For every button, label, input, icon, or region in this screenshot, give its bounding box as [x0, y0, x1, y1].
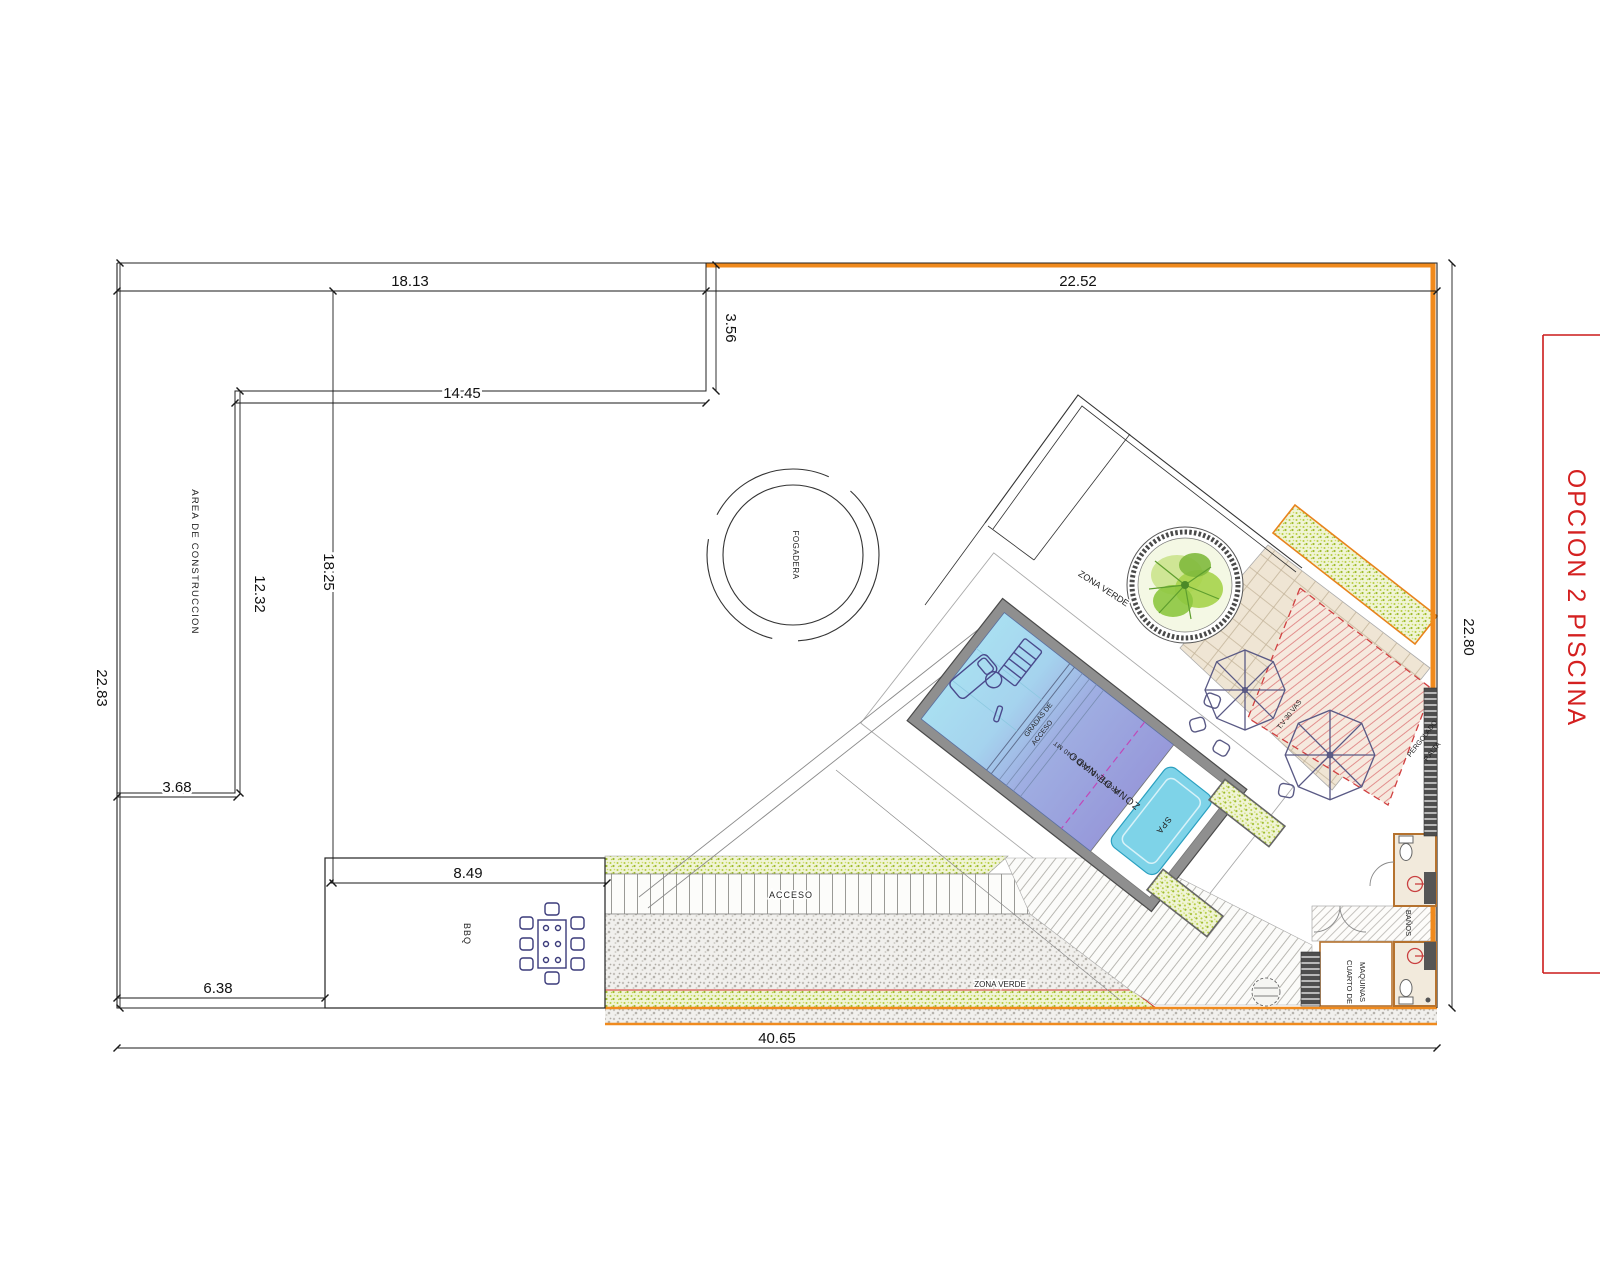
shower-stall-bottom	[1424, 942, 1436, 970]
dim-inner-width: 14.45	[443, 385, 481, 402]
dim-left-step-width: 3.68	[162, 779, 191, 796]
round-equipment	[1252, 978, 1280, 1006]
green-zone-lower-label: ZONA VERDE	[974, 980, 1026, 989]
machine-room-label-2: MAQUINAS	[1358, 962, 1367, 1002]
boundary-bottom-band	[605, 1008, 1437, 1024]
shower-stall-top	[1424, 872, 1436, 904]
dim-top-width: 18.13	[391, 273, 429, 290]
toilet-icon	[1400, 980, 1412, 997]
tree	[1127, 527, 1243, 643]
fire-pit: FOGADERA	[707, 469, 879, 641]
dim-left-height: 22.83	[93, 669, 110, 707]
dim-mid-height: 18.25	[320, 553, 337, 591]
pump-equipment	[1301, 952, 1320, 1006]
walkway-grass-strip-top	[605, 856, 1008, 874]
dim-total-width: 40.65	[758, 1030, 796, 1047]
plan-title: OPCION 2 PISCINA	[1562, 469, 1590, 727]
fire-pit-label: FOGADERA	[791, 531, 800, 580]
umbrella-1	[1205, 650, 1285, 730]
dim-bbq-width: 8.49	[453, 865, 482, 882]
umbrella-2	[1285, 710, 1375, 800]
bbq-label: BBQ	[462, 923, 472, 945]
walkway-grass-strip-bottom	[605, 990, 1156, 1008]
toilet-icon	[1400, 844, 1412, 861]
dim-bottom-left-width: 6.38	[203, 980, 232, 997]
pool-plan-drawing: FOGADERA BBQ CUARTO DE MAQUINAS BAÑOS	[0, 0, 1600, 1280]
floor-drain	[1426, 998, 1431, 1003]
machine-room-label-1: CUARTO DE	[1345, 960, 1354, 1004]
dim-right-height: 22.80	[1460, 618, 1477, 656]
walkway-deck-boards	[605, 874, 1082, 914]
dim-setback-height: 3.56	[722, 313, 739, 342]
dim-inner-left-height: 12.32	[251, 575, 268, 613]
site-plan-canvas: FOGADERA BBQ CUARTO DE MAQUINAS BAÑOS	[0, 0, 1600, 1280]
walkway-access-label: ACCESO	[769, 890, 813, 900]
construction-area-label: AREA DE CONSTRUCCION	[189, 489, 200, 634]
bathrooms-label: BAÑOS	[1404, 910, 1413, 936]
dim-top-right-width: 22.52	[1059, 273, 1097, 290]
